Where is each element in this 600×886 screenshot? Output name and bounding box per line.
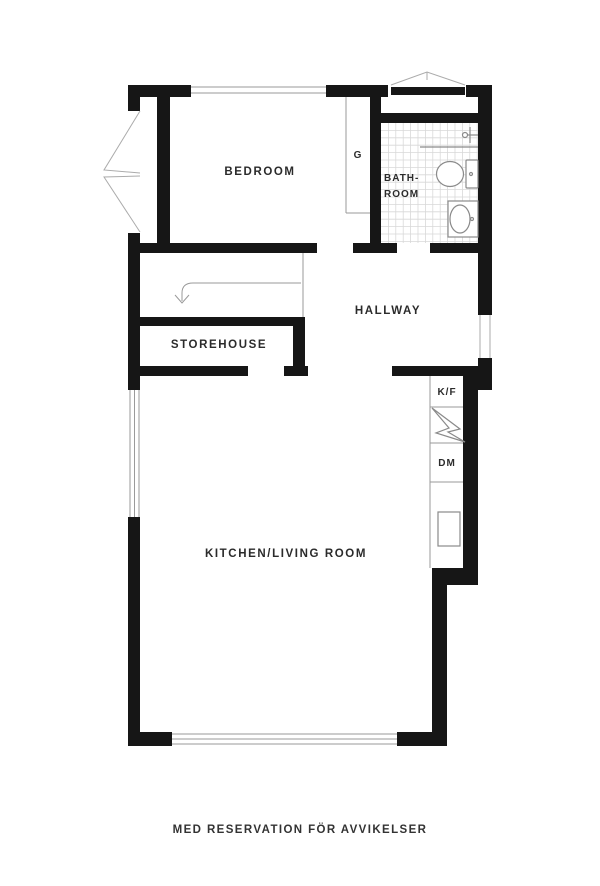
wall-right-lower	[432, 583, 447, 746]
wall-bathroom-top	[378, 113, 478, 123]
storehouse-label: STOREHOUSE	[171, 339, 267, 351]
fridge-freezer-label: K/F	[437, 387, 456, 398]
wall-left-stub-top	[128, 95, 140, 111]
wall-bottom-right-corner	[397, 732, 447, 746]
stove-icon	[432, 408, 465, 442]
closet-label: G	[354, 150, 363, 161]
kitchen-sink-icon	[438, 512, 460, 546]
wall-storehouse-bottom	[128, 366, 248, 376]
wall-right-jog	[478, 358, 492, 390]
wall-storehouse-door-stub	[284, 366, 308, 376]
wall-bedroom-bottom	[128, 243, 317, 253]
window-casement-lower-icon	[104, 176, 140, 232]
wall-right-step	[432, 568, 478, 585]
toilet-icon	[437, 160, 479, 188]
bathroom-sink-icon	[448, 201, 478, 237]
wall-bathroom-bottom-right	[430, 243, 478, 253]
wall-bottom-left-corner	[128, 732, 172, 746]
wall-bedroom-bathroom-stub	[353, 243, 397, 253]
floor-plan: BEDROOM G BATH- ROOM HALLWAY STOREHOUSE …	[0, 0, 600, 886]
dishwasher-label: DM	[438, 458, 456, 469]
stairs	[175, 253, 303, 317]
bathroom-label-line1: BATH-	[384, 173, 419, 184]
kitchen-living-label: KITCHEN/LIVING ROOM	[205, 548, 367, 560]
disclaimer-caption: MED RESERVATION FÖR AVVIKELSER	[173, 823, 428, 836]
wall-right-kitchen	[463, 374, 478, 570]
door-swing-icon	[391, 72, 465, 85]
wall-bedroom-left	[157, 97, 170, 243]
bathroom-label-line2: ROOM	[384, 189, 419, 200]
entrance-door-leaf	[391, 87, 465, 95]
window-casement-upper-icon	[104, 111, 140, 173]
wall-right-upper	[478, 95, 492, 315]
hallway-label: HALLWAY	[355, 305, 421, 317]
wall-kitchen-top	[392, 366, 478, 376]
entrance-door	[391, 72, 465, 95]
kitchen-counter	[430, 376, 465, 568]
wall-storehouse-top	[128, 317, 305, 326]
wall-left-lower	[128, 517, 140, 734]
stairs-down-arrow-icon	[182, 283, 301, 301]
bedroom-label: BEDROOM	[224, 166, 295, 178]
exterior-walls	[128, 85, 492, 746]
